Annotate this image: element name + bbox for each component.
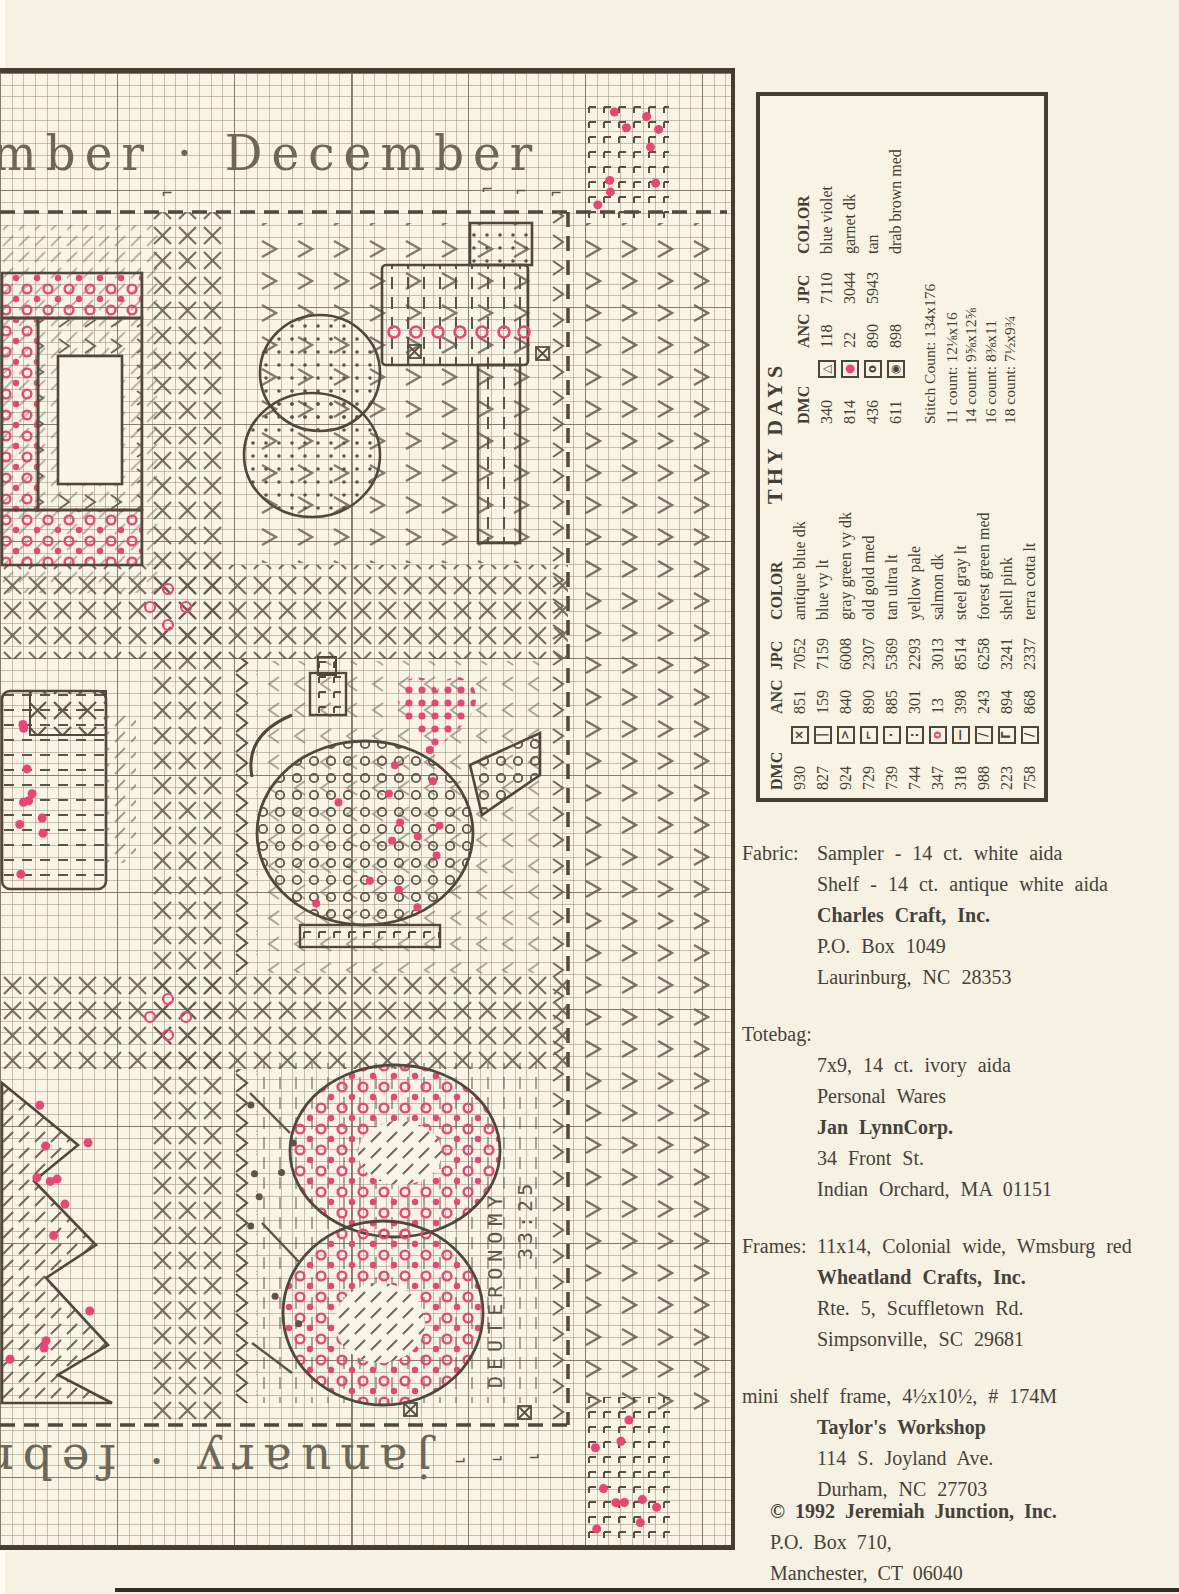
jpc-number: 5369 (883, 620, 901, 670)
col-header-dmc: DMC (768, 744, 786, 790)
copyright-line: P.O. Box 710, (770, 1527, 1057, 1558)
floss-table-secondary: DMC ANC JPC COLOR 340 △ 118 7110 blue vi… (792, 88, 907, 424)
dmc-number: 729 (860, 744, 878, 790)
fabric-label: Fabric: (742, 838, 799, 869)
color-name: terra cotta lt (1021, 454, 1039, 620)
present-motif (0, 225, 158, 593)
color-key-rotated-content: THY DAYS DMC ANC JPC COLOR 930 × 851 705… (762, 98, 1042, 796)
garland-motif (585, 223, 716, 1413)
jpc-number: 3013 (929, 620, 947, 670)
fabric-address: Laurinburg, NC 28353 (817, 962, 1176, 993)
jpc-number: 2337 (1021, 620, 1039, 670)
color-key-box: THY DAYS DMC ANC JPC COLOR 930 × 851 705… (756, 92, 1048, 802)
anchor-number: 243 (975, 670, 993, 714)
finished-sizes: 11 count: 12⅛x1614 count: 9⅝x12⅝16 count… (942, 284, 1020, 424)
anchor-number: 159 (814, 670, 832, 714)
color-name: blue vy lt (814, 454, 832, 620)
anchor-number: 851 (791, 670, 809, 714)
size-line: 14 count: 9⅝x12⅝ (961, 284, 981, 424)
fabric-company: Charles Craft, Inc. (817, 900, 1176, 931)
frames-address: Simpsonville, SC 29681 (817, 1324, 1176, 1355)
dmc-number: 814 (841, 378, 859, 424)
dmc-number: 744 (906, 744, 924, 790)
totebag-address: 34 Front St. (817, 1143, 1176, 1174)
frames-section: Frames: 11x14, Colonial wide, Wmsburg re… (742, 1231, 1176, 1355)
chart-grid: mber · December january · february ⌐ ⌐ ⌐… (0, 73, 731, 1545)
stitch-symbol: ◉ (887, 360, 905, 378)
copyright-block: © 1992 Jeremiah Junction, Inc. P.O. Box … (770, 1496, 1057, 1589)
dmc-number: 758 (1021, 744, 1039, 790)
dmc-number: 611 (887, 378, 905, 424)
anchor-number: 22 (841, 304, 859, 348)
mitten-mallet-motif (244, 223, 540, 563)
color-name: garnet dk (841, 88, 859, 254)
tree-motif (2, 1083, 112, 1403)
anchor-number: 890 (860, 670, 878, 714)
stitch-symbol: ⌐ (860, 726, 878, 744)
lattice-column (148, 212, 228, 1425)
corner-stitch-mark: ⌐ (551, 183, 561, 203)
floss-table-header: DMC ANC JPC COLOR (792, 88, 815, 424)
scanned-pattern-page: { "chart": { "top_band_label": "mber · D… (0, 0, 1179, 1594)
jpc-number: 2307 (860, 620, 878, 670)
anchor-number: 890 (864, 304, 882, 348)
anchor-number: 898 (887, 304, 905, 348)
month-band-december: mber · December (0, 124, 541, 182)
totebag-address: Indian Orchard, MA 01151 (817, 1174, 1176, 1205)
floss-row: 347 o 13 3013 salmon dk (926, 454, 949, 790)
jpc-number: 7159 (814, 620, 832, 670)
anchor-number: 301 (906, 670, 924, 714)
jpc-number: 2293 (906, 620, 924, 670)
dmc-number: 347 (929, 744, 947, 790)
floss-row: 930 × 851 7052 antique blue dk (788, 454, 811, 790)
jpc-number: 7052 (791, 620, 809, 670)
corner-stitch-mark: ⌐ (492, 1449, 502, 1469)
dmc-number: 318 (952, 744, 970, 790)
shelf-company: Taylor's Workshop (817, 1412, 1176, 1443)
dmc-number: 436 (864, 378, 882, 424)
totebag-label: Totebag: (742, 1019, 1176, 1050)
stitch-symbol: | (814, 726, 832, 744)
dmc-number: 930 (791, 744, 809, 790)
color-name: old gold med (860, 454, 878, 620)
totebag-line: Personal Wares (817, 1081, 1176, 1112)
color-name: blue violet (818, 88, 836, 254)
floss-table-header: DMC ANC JPC COLOR (765, 454, 788, 790)
stitch-symbol: : (906, 726, 924, 744)
floss-row: 739 · 885 5369 tan ultra lt (880, 454, 903, 790)
anchor-number: 885 (883, 670, 901, 714)
stitch-symbol: > (837, 726, 855, 744)
lattice-band-lower (0, 975, 568, 1069)
color-name: yellow pale (906, 454, 924, 620)
dmc-number: 739 (883, 744, 901, 790)
size-line: 16 count: 8⅜x11 (981, 284, 1001, 424)
dmc-number: 827 (814, 744, 832, 790)
floss-row: 318 — 398 8514 steel gray lt (949, 454, 972, 790)
shelf-address: 114 S. Joyland Ave. (817, 1443, 1176, 1474)
floss-rows: 340 △ 118 7110 blue violet 814 ● 22 3044… (815, 88, 907, 424)
stitch-count: Stitch Count: 134x176 (920, 284, 940, 424)
floss-row: 988 / 243 6258 forest green med (972, 454, 995, 790)
color-name: antique blue dk (791, 454, 809, 620)
stitch-symbol: o (929, 726, 947, 744)
corner-stitch-mark: ⌐ (516, 181, 526, 201)
anchor-number: 868 (1021, 670, 1039, 714)
totebag-section: Totebag: 7x9, 14 ct. ivory aida Personal… (742, 1019, 1176, 1205)
color-name: steel gray lt (952, 454, 970, 620)
anchor-number: 398 (952, 670, 970, 714)
color-name: drab brown med (887, 88, 905, 254)
chart-motifs (0, 73, 731, 1545)
floss-row: 827 | 159 7159 blue vy lt (811, 454, 834, 790)
totebag-line: 7x9, 14 ct. ivory aida (817, 1050, 1176, 1081)
copyright-line: © 1992 Jeremiah Junction, Inc. (770, 1496, 1057, 1527)
mini-shelf-line: mini shelf frame, 4½x10½, # 174M (742, 1381, 1176, 1412)
jpc-number: 8514 (952, 620, 970, 670)
floss-row: 223 Γ 894 3241 shell pink (995, 454, 1018, 790)
color-name: tan (864, 88, 882, 254)
col-header-color: COLOR (768, 454, 786, 620)
frames-line: 11x14, Colonial wide, Wmsburg red (817, 1231, 1176, 1262)
jpc-number: 6258 (975, 620, 993, 670)
anchor-number: 840 (837, 670, 855, 714)
stitch-symbol: o (864, 360, 882, 378)
size-line: 18 count: 7½x9¾ (1000, 284, 1020, 424)
totebag-company: Jan LynnCorp. (817, 1112, 1176, 1143)
teapot-motif (251, 657, 540, 973)
verse-book: DEUTERONOMY (480, 1088, 510, 1388)
floss-rows: 930 × 851 7052 antique blue dk 827 | 159… (788, 454, 1041, 790)
page-bottom-scan-edge (115, 1588, 1179, 1592)
stitch-symbol: Γ (998, 726, 1016, 744)
floss-row: 611 ◉ 898 drab brown med (884, 88, 907, 424)
zigzag-column (234, 659, 257, 975)
pinecone-motif-top (585, 98, 669, 218)
anchor-number: 13 (929, 670, 947, 714)
stitch-count-block: Stitch Count: 134x176 11 count: 12⅛x1614… (920, 284, 1020, 424)
color-name: gray green vy dk (837, 454, 855, 620)
zigzag-column (234, 1069, 257, 1403)
dmc-number: 988 (975, 744, 993, 790)
fabric-address: P.O. Box 1049 (817, 931, 1176, 962)
col-header-jpc: JPC (768, 620, 786, 670)
verse-text: DEUTERONOMY 33:25 (480, 1088, 554, 1388)
fabric-section: Fabric: Sampler - 14 ct. white aida Shel… (742, 838, 1176, 993)
stitch-symbol: · (883, 726, 901, 744)
color-name: shell pink (998, 454, 1016, 620)
copyright-line: Manchester, CT 06040 (770, 1558, 1057, 1589)
corner-stitch-mark: ⌐ (482, 179, 492, 199)
anchor-number: 894 (998, 670, 1016, 714)
color-name: forest green med (975, 454, 993, 620)
frames-address: Rte. 5, Scuffletown Rd. (817, 1293, 1176, 1324)
supplies-column: Fabric: Sampler - 14 ct. white aida Shel… (742, 838, 1176, 1531)
dmc-number: 340 (818, 378, 836, 424)
frames-company: Wheatland Crafts, Inc. (817, 1262, 1176, 1293)
color-name: tan ultra lt (883, 454, 901, 620)
corner-stitch-mark: ⌐ (529, 1447, 539, 1467)
cross-stitch-chart: mber · December january · february ⌐ ⌐ ⌐… (0, 68, 735, 1550)
col-header-anc: ANC (768, 670, 786, 714)
jpc-number: 5943 (864, 254, 882, 304)
mini-shelf-section: mini shelf frame, 4½x10½, # 174M Taylor'… (742, 1381, 1176, 1505)
dmc-number: 924 (837, 744, 855, 790)
corner-stitch-mark: ⌐ (455, 1451, 465, 1471)
floss-row: 729 ⌐ 890 2307 old gold med (857, 454, 880, 790)
stitch-symbol: — (952, 726, 970, 744)
jpc-number: 3044 (841, 254, 859, 304)
floss-table-main: DMC ANC JPC COLOR 930 × 851 7052 antique… (765, 454, 1041, 790)
floss-row: 814 ● 22 3044 garnet dk (838, 88, 861, 424)
floss-row: 924 > 840 6008 gray green vy dk (834, 454, 857, 790)
dmc-number: 223 (998, 744, 1016, 790)
floss-row: 436 o 890 5943 tan (861, 88, 884, 424)
basket-motif (2, 691, 136, 889)
jpc-number: 3241 (998, 620, 1016, 670)
color-name: salmon dk (929, 454, 947, 620)
corner-stitch-mark: ⌐ (162, 183, 172, 203)
fabric-line: Sampler - 14 ct. white aida (817, 838, 1176, 869)
jpc-number: 6008 (837, 620, 855, 670)
floss-row: 744 : 301 2293 yellow pale (903, 454, 926, 790)
size-line: 11 count: 12⅛x16 (942, 284, 962, 424)
floss-row: 340 △ 118 7110 blue violet (815, 88, 838, 424)
stitch-symbol: △ (818, 360, 836, 378)
verse-reference: 33:25 (510, 1088, 540, 1260)
stitch-symbol: / (975, 726, 993, 744)
stitch-symbol: / (1021, 726, 1039, 744)
jpc-number: 7110 (818, 254, 836, 304)
fabric-line: Shelf - 14 ct. antique white aida (817, 869, 1176, 900)
anchor-number: 118 (818, 304, 836, 348)
month-band-january-february: january · february (0, 1425, 731, 1489)
floss-row: 758 / 868 2337 terra cotta lt (1018, 454, 1041, 790)
stitch-symbol: ● (841, 360, 859, 378)
stitch-symbol: × (791, 726, 809, 744)
frames-label: Frames: (742, 1231, 806, 1262)
